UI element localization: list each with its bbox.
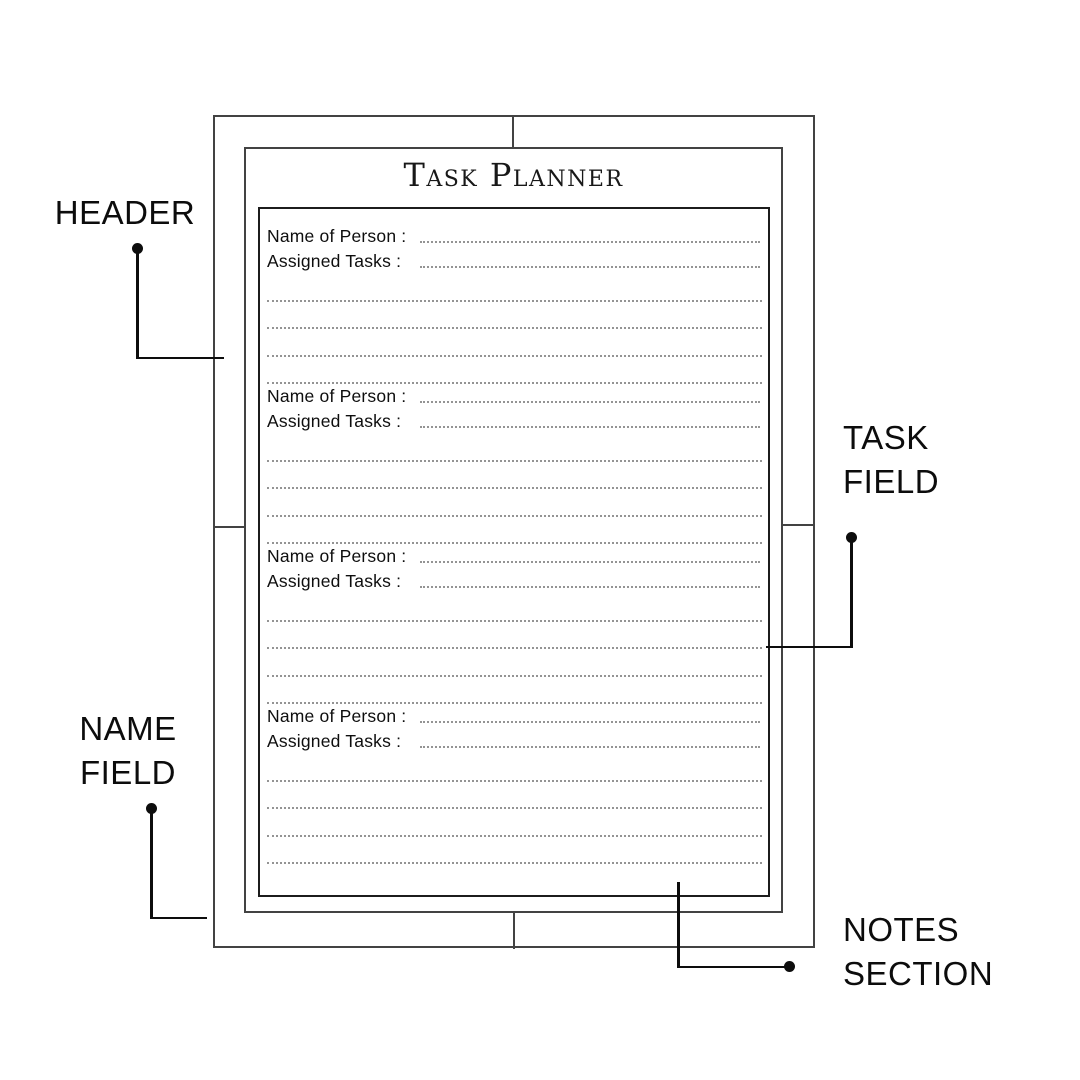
writing-line (267, 489, 762, 517)
planner-section: Name of Person : Assigned Tasks : (267, 384, 762, 544)
name-of-person-label: Name of Person : (267, 386, 412, 407)
name-entry-line (420, 551, 760, 563)
notes-writing-line (267, 809, 762, 837)
writing-line (267, 677, 762, 705)
writing-line (267, 434, 762, 462)
crease-mark-left (213, 526, 244, 528)
tasks-field-row: Assigned Tasks : (267, 409, 762, 434)
planner-section: Name of Person : Assigned Tasks : (267, 544, 762, 704)
page-title: Task Planner (244, 155, 783, 195)
assigned-tasks-label: Assigned Tasks : (267, 411, 412, 432)
task-field-callout-line-horizontal (766, 646, 853, 649)
tasks-entry-line (420, 736, 760, 748)
notes-section-label-line2: SECTION (843, 952, 993, 996)
crease-mark-top (512, 115, 514, 148)
annotated-planner-mockup: Task Planner Name of Person : Assigned T… (0, 0, 1080, 1080)
writing-line (267, 517, 762, 545)
notes-writing-line (267, 837, 762, 865)
assigned-tasks-label: Assigned Tasks : (267, 731, 412, 752)
planner-content-box: Name of Person : Assigned Tasks : Name o… (258, 207, 770, 897)
writing-line (267, 594, 762, 622)
header-annotation-label: HEADER (40, 191, 210, 235)
name-field-annotation-label: NAME FIELD (48, 707, 208, 795)
name-field-label-line1: NAME (48, 707, 208, 751)
name-entry-line (420, 711, 760, 723)
tasks-entry-line (420, 256, 760, 268)
name-field-row: Name of Person : (267, 384, 762, 409)
planner-section: Name of Person : Assigned Tasks : (267, 704, 762, 864)
planner-section: Name of Person : Assigned Tasks : (267, 224, 762, 384)
notes-section-label-line1: NOTES (843, 908, 993, 952)
tasks-field-row: Assigned Tasks : (267, 569, 762, 594)
notes-section-callout-dot (784, 961, 795, 972)
crease-mark-bottom (513, 912, 515, 949)
assigned-tasks-label: Assigned Tasks : (267, 571, 412, 592)
name-field-callout-line-horizontal (150, 917, 207, 920)
name-entry-line (420, 391, 760, 403)
notes-writing-line (267, 754, 762, 782)
task-field-label-line2: FIELD (843, 460, 939, 504)
tasks-entry-line (420, 416, 760, 428)
writing-line (267, 274, 762, 302)
name-field-callout-line-vertical (150, 809, 153, 919)
name-field-label-line2: FIELD (48, 751, 208, 795)
name-field-row: Name of Person : (267, 224, 762, 249)
writing-line (267, 462, 762, 490)
notes-section-annotation-label: NOTES SECTION (843, 908, 993, 996)
name-of-person-label: Name of Person : (267, 706, 412, 727)
name-field-row: Name of Person : (267, 544, 762, 569)
task-field-callout-line-vertical (850, 538, 853, 648)
crease-mark-right (783, 524, 815, 526)
tasks-field-row: Assigned Tasks : (267, 729, 762, 754)
header-callout-line-horizontal (136, 357, 224, 360)
writing-line (267, 329, 762, 357)
assigned-tasks-label: Assigned Tasks : (267, 251, 412, 272)
notes-writing-line (267, 782, 762, 810)
writing-line (267, 622, 762, 650)
name-of-person-label: Name of Person : (267, 226, 412, 247)
notes-section-callout-line-vertical (677, 882, 680, 968)
task-field-annotation-label: TASK FIELD (843, 416, 939, 504)
writing-line (267, 302, 762, 330)
tasks-entry-line (420, 576, 760, 588)
header-callout-line-vertical (136, 248, 139, 359)
name-entry-line (420, 231, 760, 243)
writing-line (267, 649, 762, 677)
writing-line (267, 357, 762, 385)
task-field-label-line1: TASK (843, 416, 939, 460)
name-of-person-label: Name of Person : (267, 546, 412, 567)
notes-section-callout-line-horizontal (677, 966, 790, 969)
name-field-row: Name of Person : (267, 704, 762, 729)
tasks-field-row: Assigned Tasks : (267, 249, 762, 274)
